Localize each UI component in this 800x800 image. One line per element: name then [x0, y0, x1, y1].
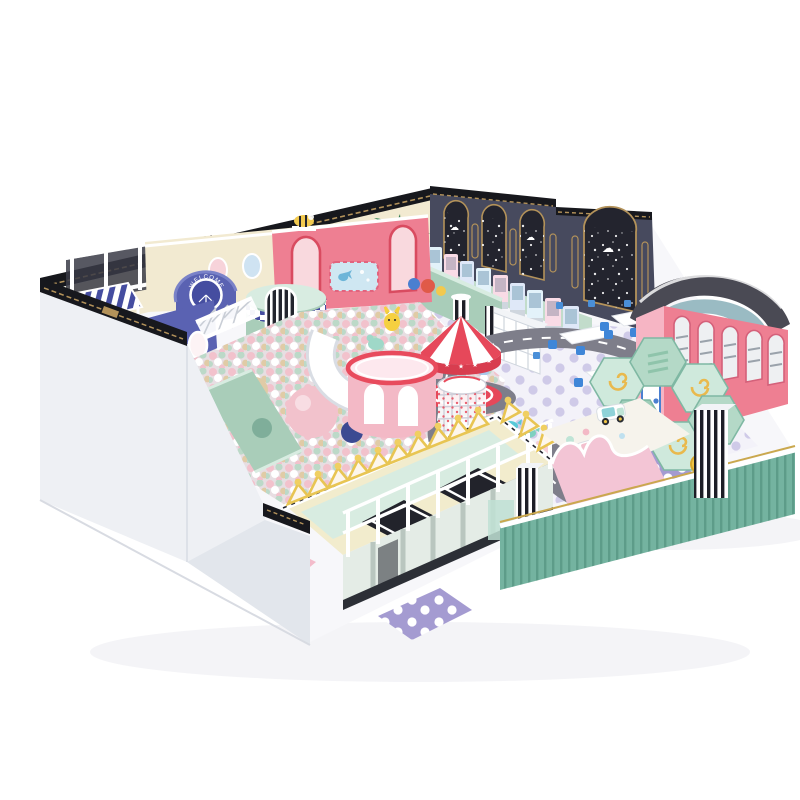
arch-doorway — [364, 384, 384, 424]
cloud-lamp-icon: ☁ — [526, 232, 535, 242]
cloud-lamp-icon: ☁ — [450, 222, 459, 232]
playground-render: ☁ ☁ ☁ — [0, 0, 800, 800]
star-icon: ★ — [444, 362, 450, 369]
cloud-lamp-icon: ☁ — [602, 241, 614, 255]
arch-doorway — [398, 386, 418, 426]
playground-scene: ☁ ☁ ☁ — [0, 0, 800, 800]
aquarium-window — [330, 262, 378, 291]
star-icon: ★ — [458, 364, 464, 371]
star-icon: ★ — [486, 358, 492, 365]
striped-pillar — [694, 410, 728, 498]
star-icon: ★ — [472, 362, 478, 369]
